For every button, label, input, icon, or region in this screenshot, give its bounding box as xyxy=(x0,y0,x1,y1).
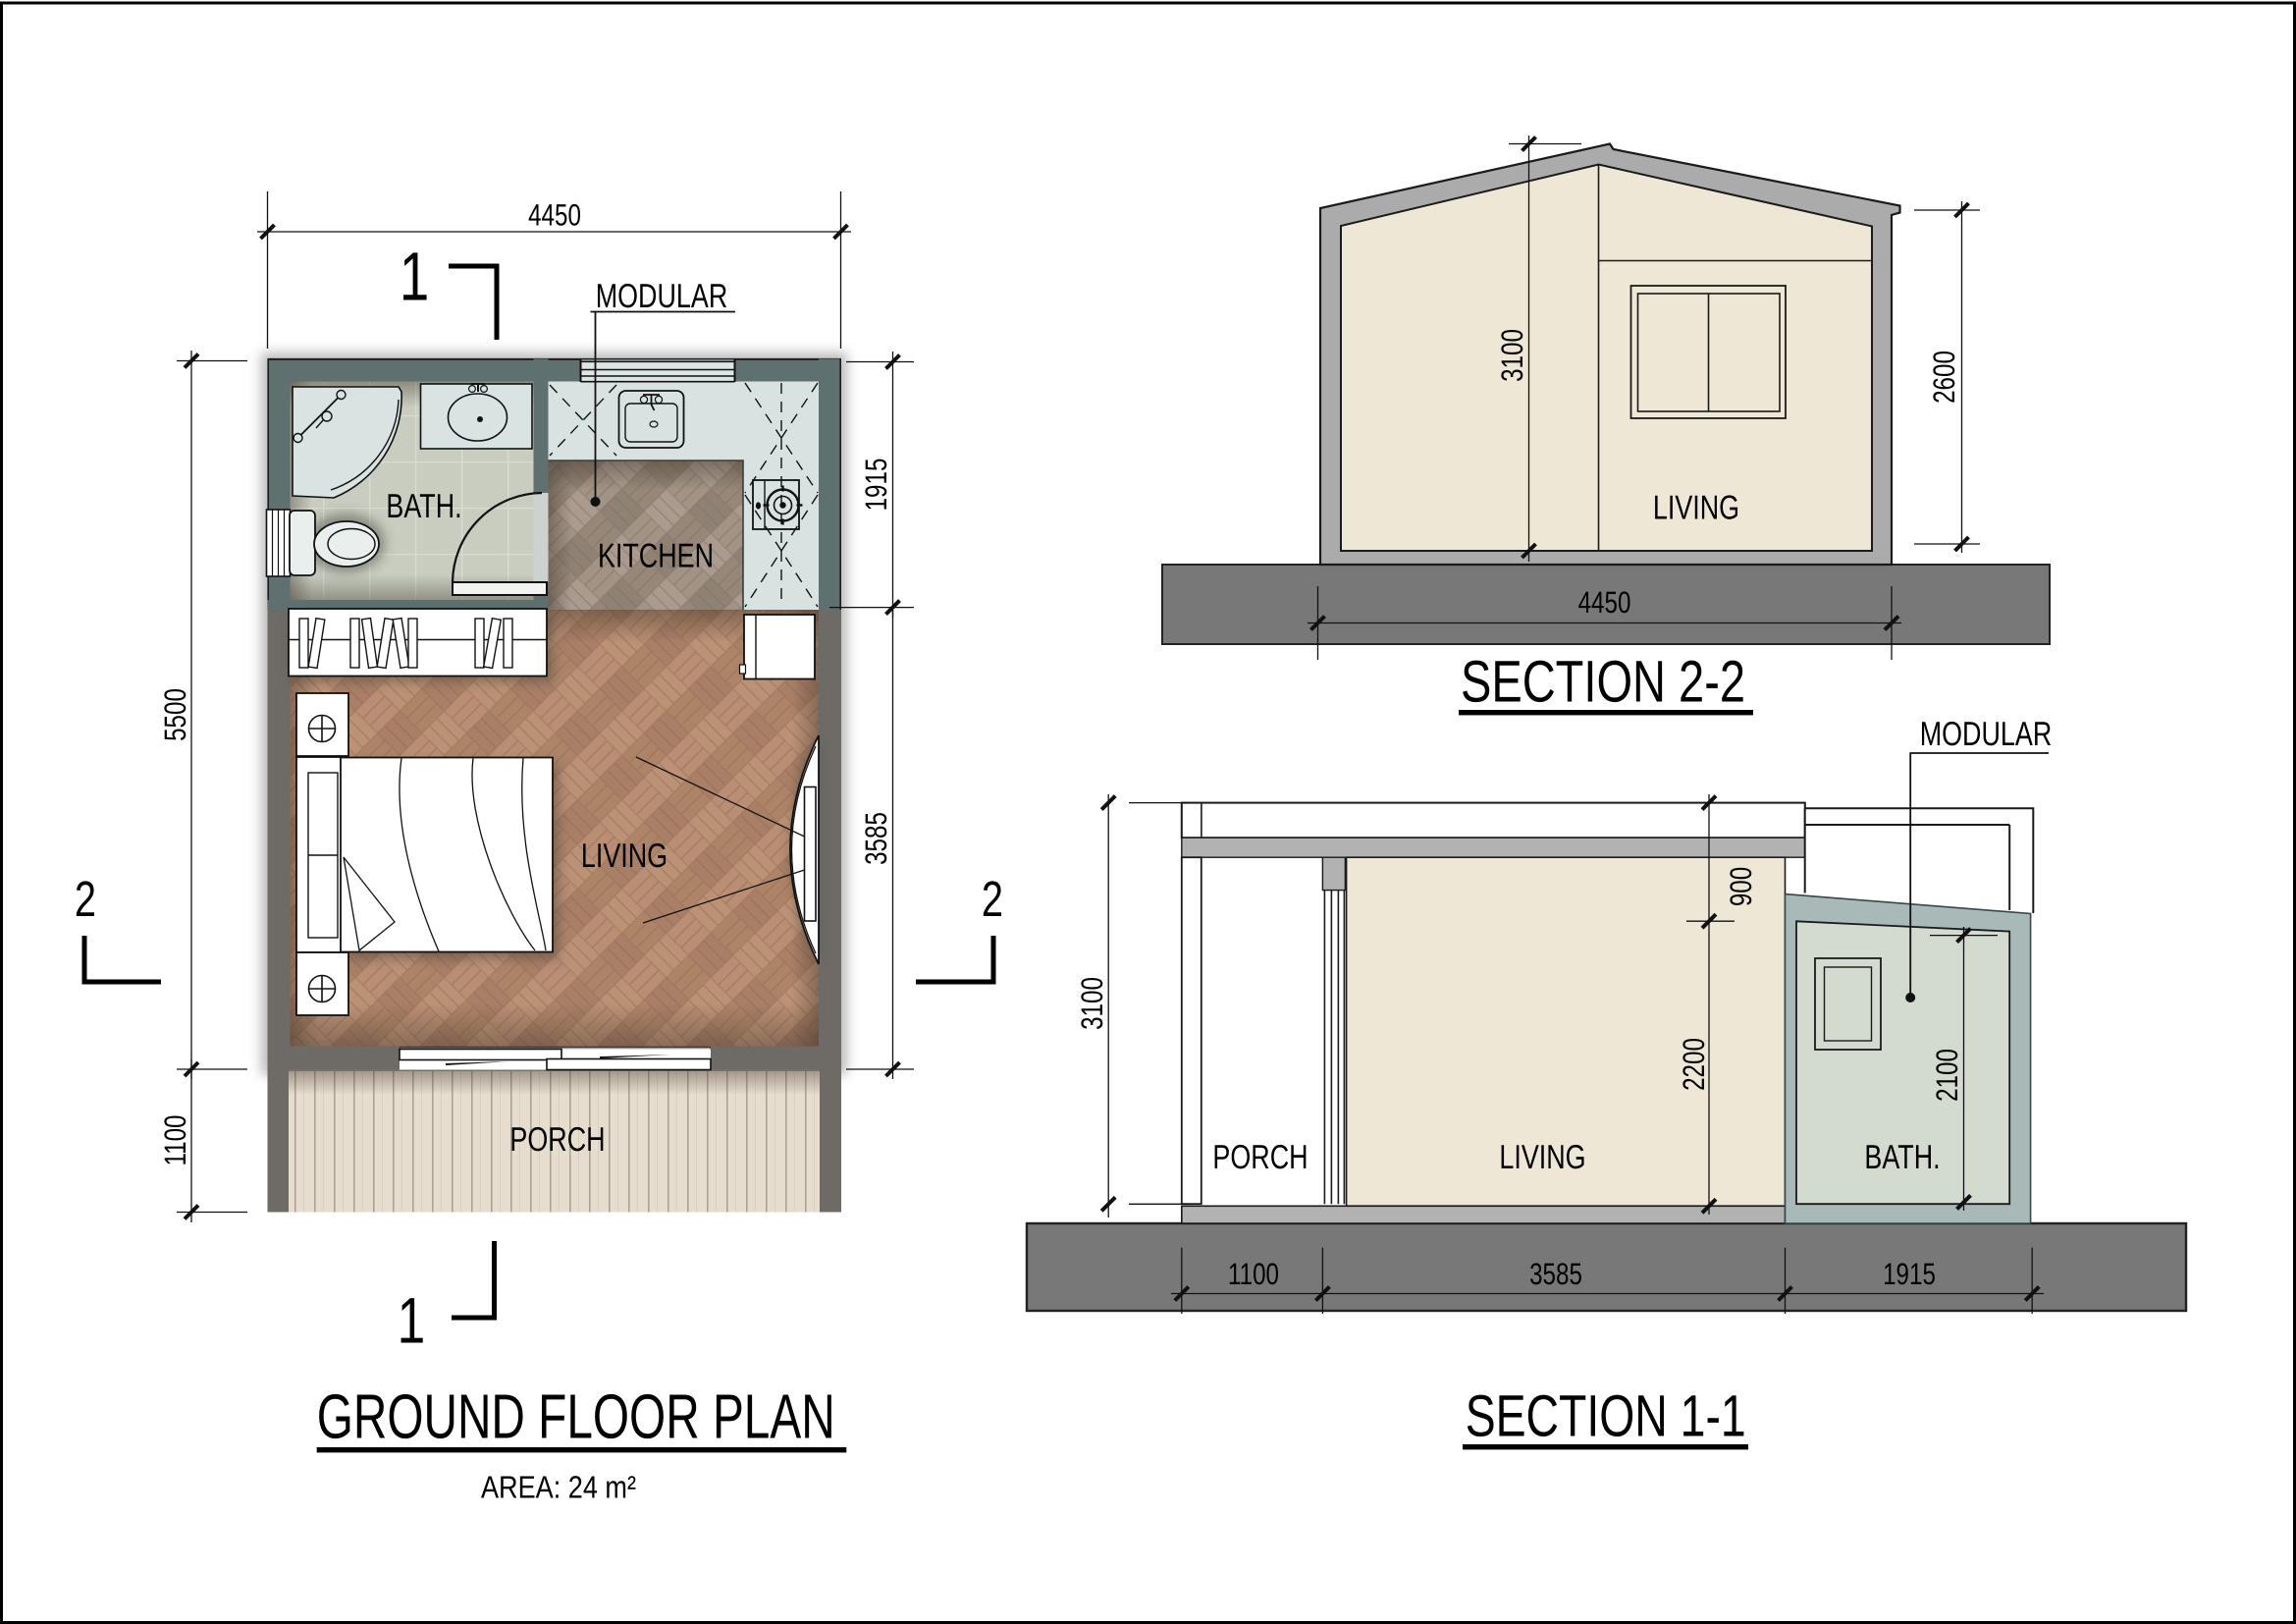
svg-text:1: 1 xyxy=(400,239,429,315)
svg-text:1915: 1915 xyxy=(859,459,893,512)
svg-text:BATH.: BATH. xyxy=(1864,1139,1940,1176)
svg-text:3585: 3585 xyxy=(859,812,893,865)
svg-text:BATH.: BATH. xyxy=(386,488,461,525)
svg-text:900: 900 xyxy=(1724,867,1758,906)
svg-text:2: 2 xyxy=(982,871,1003,927)
svg-text:4450: 4450 xyxy=(528,198,581,233)
svg-text:PORCH: PORCH xyxy=(509,1121,605,1159)
svg-text:AREA: 24 m²: AREA: 24 m² xyxy=(481,1470,636,1505)
svg-text:LIVING: LIVING xyxy=(581,838,667,875)
svg-text:LIVING: LIVING xyxy=(1499,1139,1585,1176)
svg-text:LIVING: LIVING xyxy=(1653,490,1739,527)
svg-text:3100: 3100 xyxy=(1075,977,1109,1030)
svg-text:3100: 3100 xyxy=(1495,329,1529,382)
svg-text:2600: 2600 xyxy=(1927,351,1961,404)
svg-text:2100: 2100 xyxy=(1930,1049,1964,1102)
svg-text:2: 2 xyxy=(75,871,96,927)
svg-text:GROUND FLOOR PLAN: GROUND FLOOR PLAN xyxy=(317,1381,835,1452)
svg-text:3585: 3585 xyxy=(1529,1257,1582,1291)
svg-text:MODULAR: MODULAR xyxy=(1920,716,2053,753)
svg-text:1100: 1100 xyxy=(158,1114,192,1165)
svg-text:PORCH: PORCH xyxy=(1212,1139,1308,1176)
svg-text:1915: 1915 xyxy=(1883,1257,1936,1291)
svg-text:4450: 4450 xyxy=(1578,585,1631,620)
svg-text:SECTION 1-1: SECTION 1-1 xyxy=(1466,1383,1746,1449)
svg-text:2200: 2200 xyxy=(1677,1038,1711,1091)
svg-text:MODULAR: MODULAR xyxy=(596,278,728,315)
svg-text:KITCHEN: KITCHEN xyxy=(598,538,714,575)
svg-text:1100: 1100 xyxy=(1228,1257,1279,1291)
svg-text:1: 1 xyxy=(398,1284,426,1357)
svg-text:5500: 5500 xyxy=(158,688,192,741)
svg-text:SECTION 2-2: SECTION 2-2 xyxy=(1461,649,1745,715)
